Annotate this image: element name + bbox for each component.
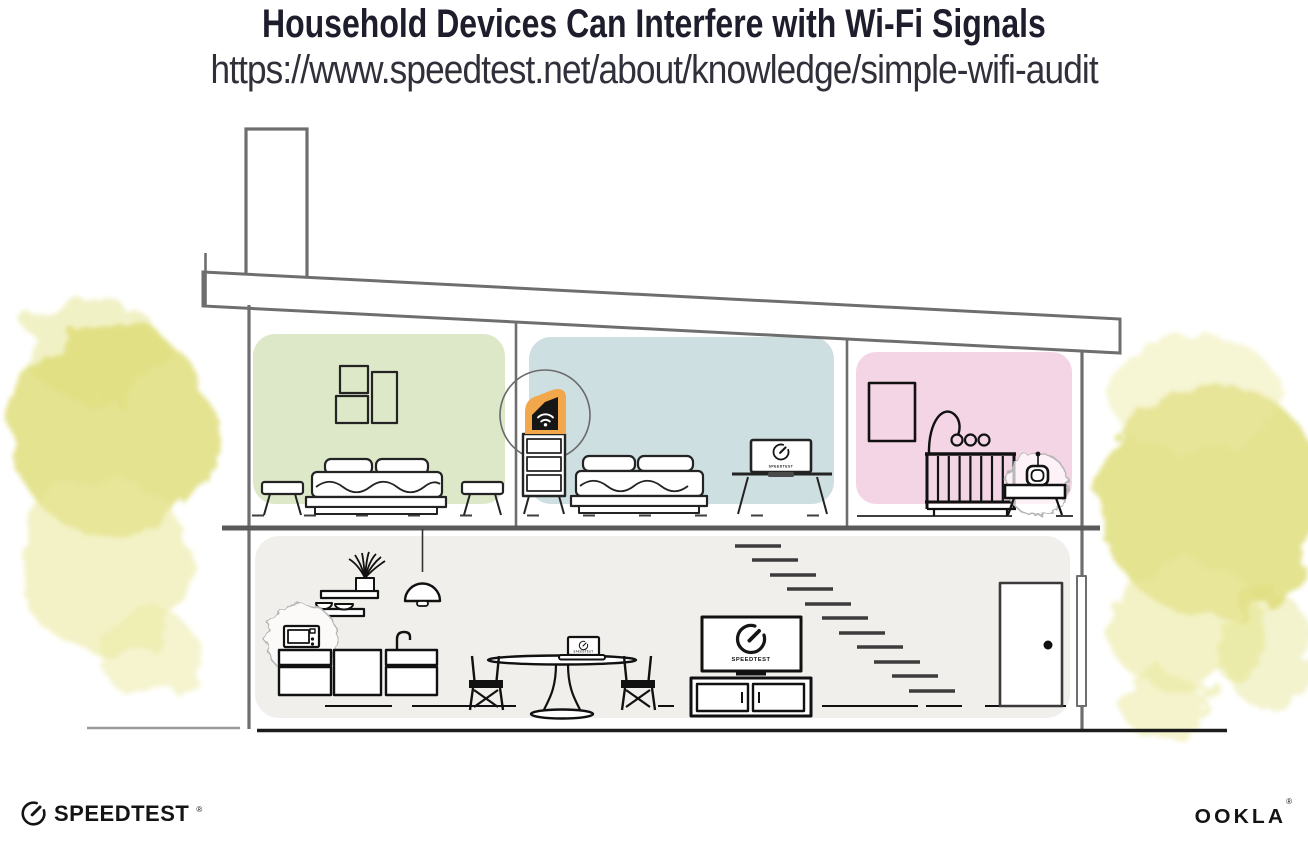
pillow [583,456,635,471]
infographic-page: SPEEDTEST [0,0,1308,861]
speedtest-logo: SPEEDTEST ® [20,800,202,827]
speedtest-trademark: ® [196,806,202,814]
ookla-wordmark: OOKLA [1195,806,1287,829]
ookla-logo: OOKLA ® [1199,806,1292,829]
baby-monitor [1027,466,1048,485]
door [1000,583,1062,706]
bed-base [315,507,437,514]
bedroom-laptop-label: SPEEDTEST [769,465,794,469]
bed-platform [571,496,707,506]
stool [462,482,503,494]
dining-laptop-label: SPEEDTEST [574,650,594,654]
source-url: https://www.speedtest.net/about/knowledg… [210,48,1097,93]
dresser [523,434,565,496]
speedtest-wordmark: SPEEDTEST [54,801,189,827]
upstairs-floor-lines [252,516,1073,517]
bowl [335,604,353,610]
speedtest-gauge-icon [20,800,47,827]
side-table [1005,485,1065,498]
tv-screen-label: SPEEDTEST [732,657,771,663]
media-console [691,678,811,716]
tv: SPEEDTEST [702,617,801,676]
planter [356,578,374,591]
bed-base [579,506,699,513]
page-title-row: Household Devices Can Interfere with Wi-… [0,2,1308,47]
chimney [246,129,307,289]
page-title: Household Devices Can Interfere with Wi-… [262,2,1046,47]
bed-platform [306,497,446,507]
microwave [284,626,319,647]
tree-right [1100,335,1308,740]
door-knob [1044,641,1053,650]
downspout [1077,576,1086,706]
ookla-trademark: ® [1286,798,1292,806]
ground-lines [87,728,1227,731]
stool [262,482,303,494]
mattress [312,472,442,497]
house-illustration: SPEEDTEST [0,0,1308,861]
page-subtitle-row: https://www.speedtest.net/about/knowledg… [0,48,1308,93]
tree-left [12,300,212,697]
crib [925,454,1016,516]
pillow [638,456,693,471]
wall-shelf [321,591,378,598]
